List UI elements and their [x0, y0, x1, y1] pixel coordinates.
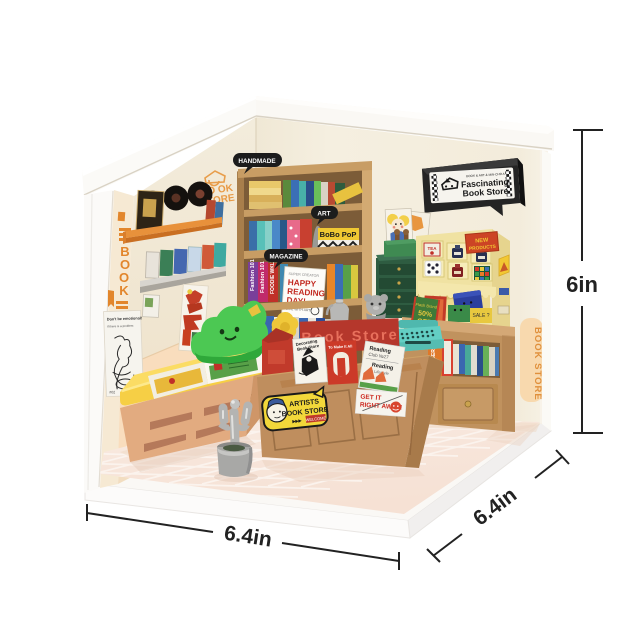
svg-text:▸▸▸: ▸▸▸ — [291, 418, 303, 425]
svg-text:Fashion 101: Fashion 101 — [260, 261, 266, 293]
svg-text:BOOK STORE: BOOK STORE — [532, 327, 543, 401]
svg-text:HANDMADE: HANDMADE — [238, 158, 276, 165]
svg-text:Fashion 101: Fashion 101 — [250, 259, 256, 291]
svg-text:BoBo PoP: BoBo PoP — [320, 230, 357, 239]
svg-text:ART: ART — [317, 211, 330, 218]
svg-text:6in: 6in — [566, 272, 598, 297]
svg-text:SALE ?: SALE ? — [473, 313, 490, 319]
svg-text:MAGAZINE: MAGAZINE — [270, 254, 303, 261]
svg-text:K: K — [119, 283, 129, 298]
svg-text:GET IT: GET IT — [360, 394, 381, 402]
svg-text:TEA: TEA — [428, 246, 438, 251]
svg-text:FOODIE WKLY: FOODIE WKLY — [270, 259, 276, 294]
svg-text:#02: #02 — [109, 390, 115, 394]
svg-text:NEW: NEW — [475, 237, 489, 244]
